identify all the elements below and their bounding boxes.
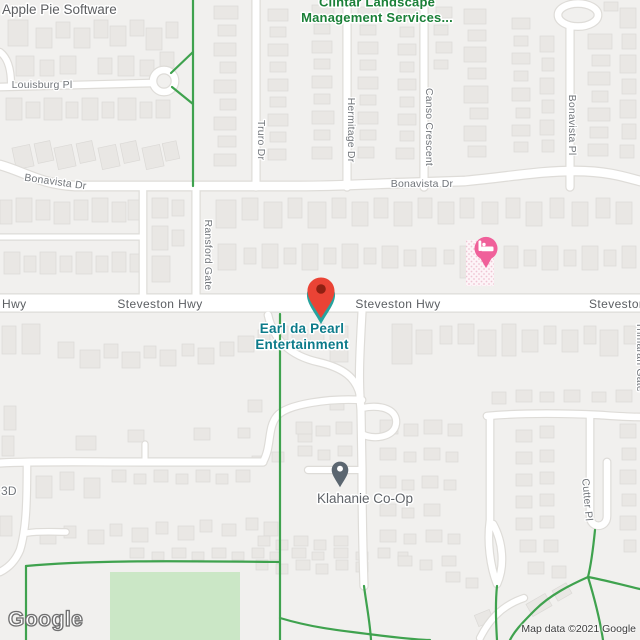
building xyxy=(434,25,448,35)
building xyxy=(262,244,278,268)
building xyxy=(440,326,452,344)
building xyxy=(80,350,100,368)
building xyxy=(314,130,330,140)
building xyxy=(588,72,610,85)
map-attribution: Map data ©2021 Google xyxy=(521,623,636,635)
road xyxy=(487,414,640,417)
building xyxy=(248,400,262,412)
building xyxy=(438,202,454,224)
building xyxy=(214,43,236,56)
building xyxy=(268,149,286,160)
building xyxy=(4,406,16,430)
building xyxy=(98,58,112,74)
building xyxy=(0,516,12,536)
building xyxy=(616,202,632,224)
building xyxy=(220,342,234,356)
building xyxy=(316,564,328,574)
building xyxy=(526,202,542,226)
poi-label-clintar-line1[interactable]: Clintar Landscape xyxy=(319,0,435,10)
building xyxy=(214,80,236,93)
building xyxy=(542,246,558,270)
building xyxy=(564,390,580,402)
building xyxy=(542,58,554,71)
building xyxy=(398,556,412,566)
building xyxy=(312,76,332,88)
street-label-steveston-hwy-partial-left: Hwy xyxy=(2,297,27,311)
building xyxy=(246,518,258,530)
building xyxy=(212,548,226,558)
building xyxy=(512,53,530,64)
building xyxy=(512,18,530,29)
building xyxy=(222,524,236,536)
building xyxy=(232,552,244,560)
building xyxy=(312,111,334,124)
building xyxy=(342,244,358,268)
building xyxy=(198,348,214,364)
building xyxy=(152,198,168,218)
building xyxy=(110,26,126,46)
building xyxy=(468,146,486,157)
building xyxy=(298,446,312,456)
building xyxy=(552,566,566,578)
building xyxy=(562,330,578,352)
building xyxy=(374,198,388,218)
building xyxy=(402,508,414,518)
building xyxy=(214,6,238,19)
building xyxy=(528,562,544,574)
building xyxy=(482,202,498,224)
building xyxy=(156,100,170,118)
building xyxy=(424,504,440,516)
street-label-ransford-gate: Ransford Gate xyxy=(202,220,214,291)
building xyxy=(264,522,278,536)
building xyxy=(464,126,486,141)
building xyxy=(16,198,32,222)
building xyxy=(418,198,432,218)
building xyxy=(2,326,16,354)
building xyxy=(238,336,254,352)
building xyxy=(160,52,174,68)
street-label-steveston-hwy-partial-right: Steveston Hwy xyxy=(589,297,640,311)
google-logo[interactable]: Google xyxy=(8,608,83,632)
map-viewport[interactable]: Louisburg Pl Bonavista Dr Bonavista Dr T… xyxy=(0,0,640,640)
building xyxy=(540,494,554,506)
building xyxy=(152,552,164,560)
building xyxy=(122,352,140,368)
building xyxy=(400,62,414,72)
building xyxy=(84,478,100,498)
building xyxy=(118,98,136,120)
building xyxy=(272,452,284,462)
building xyxy=(422,476,438,488)
building xyxy=(620,470,636,484)
building xyxy=(314,540,326,550)
building xyxy=(572,202,588,226)
building xyxy=(152,226,168,250)
building xyxy=(446,452,458,462)
building xyxy=(4,252,20,274)
building xyxy=(540,426,554,438)
building xyxy=(220,99,236,110)
street-label-bonavista-dr-center: Bonavista Dr xyxy=(391,178,454,190)
building xyxy=(244,248,256,264)
building xyxy=(540,472,554,484)
building xyxy=(76,436,96,450)
building xyxy=(420,560,432,570)
building xyxy=(0,200,12,224)
building xyxy=(284,248,296,264)
building xyxy=(364,248,376,264)
building xyxy=(24,256,36,272)
building xyxy=(416,330,432,354)
building xyxy=(270,97,286,107)
building xyxy=(276,540,288,550)
building xyxy=(540,78,554,94)
building xyxy=(178,526,194,540)
building xyxy=(56,22,70,38)
building xyxy=(596,198,610,218)
poi-label-clintar-line2[interactable]: Management Services... xyxy=(301,10,453,25)
building xyxy=(380,448,396,460)
building xyxy=(196,470,210,482)
building xyxy=(422,248,436,266)
building xyxy=(296,560,310,570)
building xyxy=(588,144,608,156)
building xyxy=(338,446,352,456)
building xyxy=(112,202,126,222)
building xyxy=(504,246,518,268)
building xyxy=(60,472,74,490)
building xyxy=(516,452,532,464)
street-label-truro-dr: Truro Dr xyxy=(255,120,267,161)
building xyxy=(358,112,378,124)
road xyxy=(359,312,364,586)
building xyxy=(128,430,144,442)
poi-label-apple-pie-software[interactable]: Apple Pie Software xyxy=(2,2,117,17)
street-label-hermitage-dr: Hermitage Dr xyxy=(345,98,357,163)
building xyxy=(166,22,178,38)
building xyxy=(516,108,530,118)
building xyxy=(292,548,306,558)
building xyxy=(270,132,286,142)
bed-mattress-icon xyxy=(481,247,494,252)
building xyxy=(134,474,146,484)
building xyxy=(458,324,474,344)
building xyxy=(624,540,636,552)
building xyxy=(264,202,282,228)
building xyxy=(6,98,22,120)
building xyxy=(74,200,88,220)
building xyxy=(112,252,126,272)
building xyxy=(592,55,610,66)
building xyxy=(104,344,118,358)
building xyxy=(58,342,74,358)
building xyxy=(466,578,478,588)
building xyxy=(268,79,288,91)
building xyxy=(314,24,330,34)
building xyxy=(242,198,258,220)
building xyxy=(516,518,532,530)
building xyxy=(214,117,236,130)
building xyxy=(360,25,376,35)
building xyxy=(26,102,40,118)
building xyxy=(392,324,412,364)
building xyxy=(402,480,414,490)
building xyxy=(514,142,528,152)
building xyxy=(130,548,144,558)
building xyxy=(128,200,140,220)
building xyxy=(622,448,636,460)
building xyxy=(516,474,532,486)
building xyxy=(620,100,636,118)
building xyxy=(394,202,412,226)
building xyxy=(540,450,554,462)
bed-icon xyxy=(479,241,482,252)
building xyxy=(604,250,616,266)
building xyxy=(404,534,416,544)
building xyxy=(592,392,606,402)
building xyxy=(40,60,54,76)
building xyxy=(506,198,520,218)
building xyxy=(176,474,188,484)
building xyxy=(442,556,456,566)
building xyxy=(218,25,236,36)
building xyxy=(448,534,460,544)
building xyxy=(94,20,108,38)
building xyxy=(620,145,634,158)
building xyxy=(216,200,236,228)
building xyxy=(400,27,414,37)
building xyxy=(502,324,516,356)
building xyxy=(396,148,414,159)
building xyxy=(470,108,488,119)
street-label-steveston-hwy-1: Steveston Hwy xyxy=(117,297,202,311)
building xyxy=(130,20,144,36)
road xyxy=(27,532,66,533)
building xyxy=(512,125,530,136)
building xyxy=(604,2,618,11)
building xyxy=(424,448,440,460)
building xyxy=(522,330,538,352)
building xyxy=(358,77,378,89)
building xyxy=(16,56,34,76)
building xyxy=(118,56,134,76)
building xyxy=(336,560,348,570)
building xyxy=(464,9,486,24)
poi-label-earl-da-pearl-line2[interactable]: Entertainment xyxy=(255,337,349,352)
building xyxy=(140,102,152,118)
building xyxy=(92,198,108,222)
building xyxy=(60,256,72,272)
building xyxy=(60,56,76,74)
building xyxy=(582,246,598,270)
building xyxy=(132,528,148,542)
building xyxy=(398,114,416,125)
building xyxy=(360,95,376,105)
building xyxy=(380,530,396,542)
poi-label-klahanie-coop[interactable]: Klahanie Co-Op xyxy=(317,491,413,506)
building xyxy=(492,392,506,404)
building xyxy=(564,250,576,266)
building xyxy=(156,522,168,534)
building xyxy=(96,256,108,272)
park-field xyxy=(110,572,240,640)
building xyxy=(512,88,530,101)
building xyxy=(426,530,442,542)
building xyxy=(588,34,612,49)
building xyxy=(36,476,52,498)
building xyxy=(382,246,398,268)
building xyxy=(444,250,454,264)
street-label-canso-crescent: Canso Crescent xyxy=(423,88,435,166)
building xyxy=(220,62,236,73)
building xyxy=(448,424,462,436)
building xyxy=(102,102,114,118)
building xyxy=(514,71,528,81)
building xyxy=(218,136,236,147)
gray-pin-dot xyxy=(337,466,343,472)
building xyxy=(288,198,302,218)
building xyxy=(270,27,286,37)
building xyxy=(468,30,486,41)
building xyxy=(214,154,236,166)
building xyxy=(152,256,170,282)
building xyxy=(540,516,554,528)
building xyxy=(238,428,250,438)
building xyxy=(398,44,416,55)
building xyxy=(622,124,636,139)
building xyxy=(312,41,332,53)
building xyxy=(252,548,264,558)
street-label-louisburg-pl: Louisburg Pl xyxy=(12,79,73,91)
building xyxy=(516,390,532,402)
building xyxy=(302,244,318,270)
building xyxy=(514,36,528,46)
building xyxy=(588,108,610,121)
building xyxy=(542,140,554,152)
building xyxy=(314,94,330,104)
building xyxy=(44,98,62,120)
building xyxy=(622,494,636,506)
building xyxy=(600,330,618,356)
building xyxy=(616,390,632,402)
building xyxy=(540,392,554,402)
building xyxy=(434,60,448,69)
building xyxy=(316,426,330,436)
building xyxy=(520,540,536,552)
building xyxy=(258,536,270,546)
bed-pillow-icon xyxy=(482,243,485,246)
building xyxy=(332,198,346,218)
trail-path xyxy=(496,586,497,640)
building xyxy=(620,55,636,73)
building xyxy=(268,114,288,126)
building xyxy=(172,548,186,558)
building xyxy=(160,350,176,366)
building xyxy=(468,68,486,79)
building xyxy=(54,202,70,224)
poi-label-earl-da-pearl-line1[interactable]: Earl da Pearl xyxy=(260,321,344,336)
building xyxy=(590,127,608,138)
building xyxy=(22,324,40,354)
red-pin-dot xyxy=(316,284,326,294)
building xyxy=(516,496,532,508)
building xyxy=(268,44,288,56)
building xyxy=(154,470,168,482)
building xyxy=(268,9,288,21)
building xyxy=(40,252,56,274)
building xyxy=(404,250,416,266)
google-maps-canvas[interactable]: Louisburg Pl Bonavista Dr Bonavista Dr T… xyxy=(0,0,640,640)
road xyxy=(0,462,263,463)
building xyxy=(620,8,636,28)
building xyxy=(544,326,556,344)
building xyxy=(36,28,52,48)
building xyxy=(172,230,184,246)
building xyxy=(314,59,330,69)
building xyxy=(276,564,288,574)
building xyxy=(622,34,636,49)
building xyxy=(378,548,390,558)
building xyxy=(550,198,564,218)
street-label-bonavista-pl: Bonavista Pl xyxy=(566,95,578,156)
building xyxy=(236,470,250,482)
building xyxy=(400,97,414,107)
building xyxy=(400,131,414,141)
street-label-trimaran-gate: Trimaran Gate xyxy=(634,322,640,392)
building xyxy=(542,100,554,113)
building xyxy=(36,200,50,220)
building xyxy=(540,36,554,52)
building xyxy=(88,530,104,544)
building xyxy=(620,424,636,438)
building xyxy=(334,548,348,558)
building xyxy=(436,42,452,53)
street-label-steveston-hwy-2: Steveston Hwy xyxy=(355,297,440,311)
building xyxy=(146,28,162,50)
building xyxy=(110,524,122,536)
building xyxy=(380,476,396,488)
building xyxy=(592,91,608,102)
building xyxy=(622,79,636,94)
building xyxy=(144,346,156,358)
building xyxy=(352,202,368,226)
building xyxy=(218,244,236,270)
building xyxy=(336,422,352,434)
building xyxy=(358,147,374,158)
building xyxy=(312,552,324,560)
building xyxy=(294,536,308,546)
building xyxy=(358,42,378,54)
building xyxy=(622,246,636,268)
building xyxy=(360,60,376,70)
building xyxy=(464,47,486,62)
building xyxy=(544,540,558,552)
building xyxy=(524,250,536,266)
building xyxy=(324,248,336,264)
building xyxy=(270,552,280,560)
building xyxy=(516,430,532,442)
building xyxy=(584,326,596,344)
building xyxy=(200,520,212,532)
building xyxy=(446,572,460,582)
street-label-partial-3d: 3D xyxy=(1,484,17,498)
building xyxy=(194,428,210,440)
building xyxy=(270,62,286,72)
building xyxy=(192,552,204,560)
building xyxy=(182,344,194,356)
building xyxy=(398,79,416,90)
